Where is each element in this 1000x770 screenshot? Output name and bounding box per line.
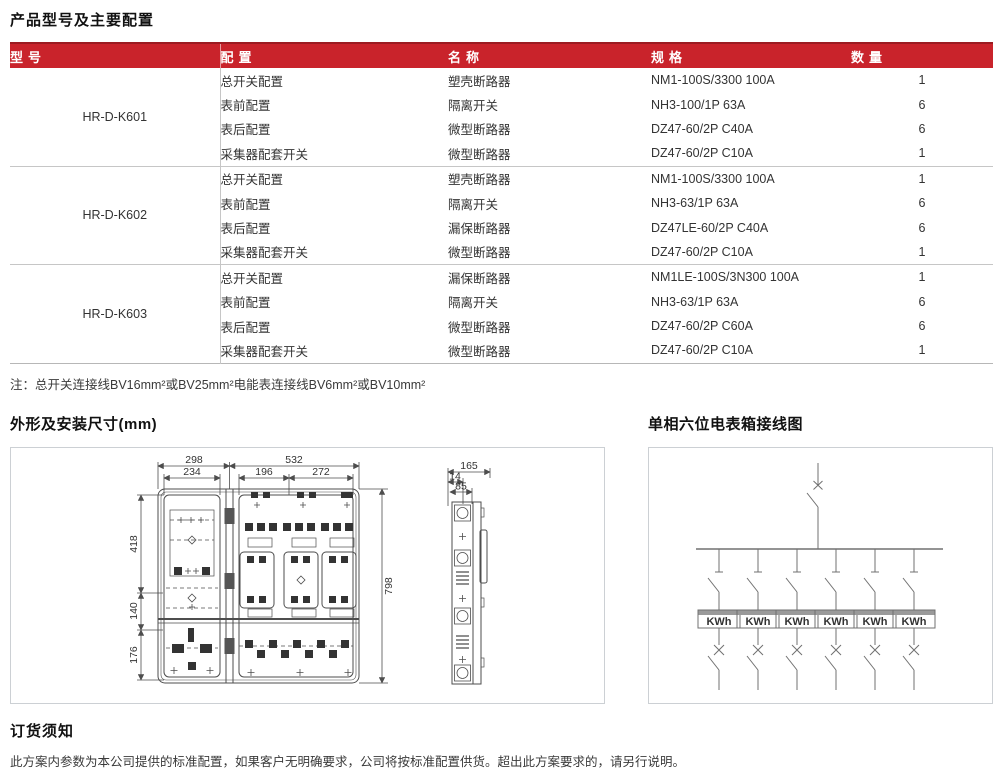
cell-spec: NH3-100/1P 63A	[651, 92, 851, 116]
cell-config: 总开关配置	[220, 265, 448, 290]
wiring-section: 单相六位电表箱接线图	[648, 413, 993, 704]
cell-spec: NH3-63/1P 63A	[651, 191, 851, 215]
order-section-title: 订货须知	[10, 720, 1000, 741]
cell-name: 隔离开关	[448, 191, 651, 215]
cell-spec: DZ47-60/2P C40A	[651, 117, 851, 141]
spec-table: 型号 配置 名称 规格 数量 HR-D-K601 总开关配置 塑壳断路器 NM1…	[10, 42, 993, 364]
cell-name: 微型断路器	[448, 117, 651, 141]
table-note: 注：总开关连接线BV16mm²或BV25mm²电能表连接线BV6mm²或BV10…	[10, 374, 1000, 393]
table-row: HR-D-K602 总开关配置 塑壳断路器 NM1-100S/3300 100A…	[10, 166, 993, 191]
side-dimension-labels: 165 14 85	[449, 460, 478, 493]
dim-label: 165	[460, 460, 478, 472]
cell-config: 表前配置	[220, 290, 448, 314]
wiring-diagram: KWh KWh KWh KWh KWh KWh	[649, 448, 992, 703]
cell-name: 隔离开关	[448, 92, 651, 116]
dim-label: 196	[255, 466, 273, 478]
cell-name: 塑壳断路器	[448, 166, 651, 191]
model-cell: HR-D-K601	[10, 68, 220, 166]
cell-config: 表后配置	[220, 117, 448, 141]
cell-qty: 1	[851, 265, 993, 290]
dim-label: 272	[312, 466, 330, 478]
cell-spec: NM1LE-100S/3N300 100A	[651, 265, 851, 290]
cell-config: 表后配置	[220, 215, 448, 239]
outline-drawing-panel: 298 532 234 196 272 418 140 176 798	[10, 447, 605, 704]
cell-qty: 6	[851, 314, 993, 338]
cell-qty: 6	[851, 215, 993, 239]
side-view-drawing	[452, 502, 487, 684]
outline-drawing: 298 532 234 196 272 418 140 176 798	[11, 448, 604, 703]
main-breaker-symbol	[807, 463, 823, 549]
cell-config: 表前配置	[220, 92, 448, 116]
cell-config: 表后配置	[220, 314, 448, 338]
page-title: 产品型号及主要配置	[10, 9, 1000, 30]
cell-config: 表前配置	[220, 191, 448, 215]
cell-config: 采集器配套开关	[220, 338, 448, 363]
cell-config: 采集器配套开关	[220, 240, 448, 265]
cell-spec: NH3-63/1P 63A	[651, 290, 851, 314]
dim-label: 298	[185, 454, 203, 466]
dim-label: 798	[383, 577, 395, 595]
table-row: HR-D-K603 总开关配置 漏保断路器 NM1LE-100S/3N300 1…	[10, 265, 993, 290]
kwh-meter-label: KWh	[745, 616, 770, 628]
cell-spec: DZ47LE-60/2P C40A	[651, 215, 851, 239]
lower-sections: 外形及安装尺寸(mm)	[10, 413, 990, 704]
model-cell: HR-D-K603	[10, 265, 220, 364]
cell-spec: DZ47-60/2P C60A	[651, 314, 851, 338]
table-header-row: 型号 配置 名称 规格 数量	[10, 43, 993, 68]
kwh-meter-label: KWh	[823, 616, 848, 628]
wiring-section-title: 单相六位电表箱接线图	[648, 413, 993, 434]
order-text: 此方案内参数为本公司提供的标准配置，如果客户无明确要求，公司将按标准配置供货。超…	[10, 751, 1000, 770]
dim-label: 85	[455, 480, 467, 492]
model-cell: HR-D-K602	[10, 166, 220, 265]
outline-section-title: 外形及安装尺寸(mm)	[10, 413, 605, 434]
cell-spec: DZ47-60/2P C10A	[651, 141, 851, 166]
kwh-meter-label: KWh	[862, 616, 887, 628]
cell-qty: 1	[851, 240, 993, 265]
cell-spec: NM1-100S/3300 100A	[651, 166, 851, 191]
cell-name: 微型断路器	[448, 314, 651, 338]
wiring-diagram-panel: KWh KWh KWh KWh KWh KWh	[648, 447, 993, 704]
kwh-meter-label: KWh	[706, 616, 731, 628]
cell-qty: 1	[851, 338, 993, 363]
table-row: HR-D-K601 总开关配置 塑壳断路器 NM1-100S/3300 100A…	[10, 68, 993, 92]
cell-qty: 6	[851, 290, 993, 314]
cell-qty: 6	[851, 92, 993, 116]
cell-spec: DZ47-60/2P C10A	[651, 240, 851, 265]
dim-label: 140	[128, 602, 140, 620]
col-header-spec: 规格	[651, 43, 851, 68]
outline-section: 外形及安装尺寸(mm)	[10, 413, 605, 704]
cell-name: 微型断路器	[448, 338, 651, 363]
cell-spec: NM1-100S/3300 100A	[651, 68, 851, 92]
cell-spec: DZ47-60/2P C10A	[651, 338, 851, 363]
front-view-drawing	[158, 489, 359, 683]
cell-qty: 1	[851, 166, 993, 191]
dim-label: 176	[128, 646, 140, 664]
cell-name: 漏保断路器	[448, 265, 651, 290]
cell-name: 隔离开关	[448, 290, 651, 314]
cell-config: 总开关配置	[220, 68, 448, 92]
col-header-name: 名称	[448, 43, 651, 68]
dim-label: 234	[183, 466, 201, 478]
col-header-qty: 数量	[851, 43, 993, 68]
cell-config: 总开关配置	[220, 166, 448, 191]
cell-name: 微型断路器	[448, 141, 651, 166]
kwh-meter-label: KWh	[901, 616, 926, 628]
dim-label: 418	[128, 535, 140, 553]
cell-name: 漏保断路器	[448, 215, 651, 239]
cell-name: 微型断路器	[448, 240, 651, 265]
catalog-page: 产品型号及主要配置 型号 配置 名称 规格 数量 HR-D-K601 总开关配置…	[0, 9, 1000, 760]
col-header-config: 配置	[220, 43, 448, 68]
cell-qty: 1	[851, 68, 993, 92]
dim-label: 532	[285, 454, 303, 466]
cell-qty: 6	[851, 117, 993, 141]
kwh-meter-label: KWh	[784, 616, 809, 628]
cell-name: 塑壳断路器	[448, 68, 651, 92]
cell-qty: 6	[851, 191, 993, 215]
cell-config: 采集器配套开关	[220, 141, 448, 166]
col-header-model: 型号	[10, 43, 220, 68]
cell-qty: 1	[851, 141, 993, 166]
